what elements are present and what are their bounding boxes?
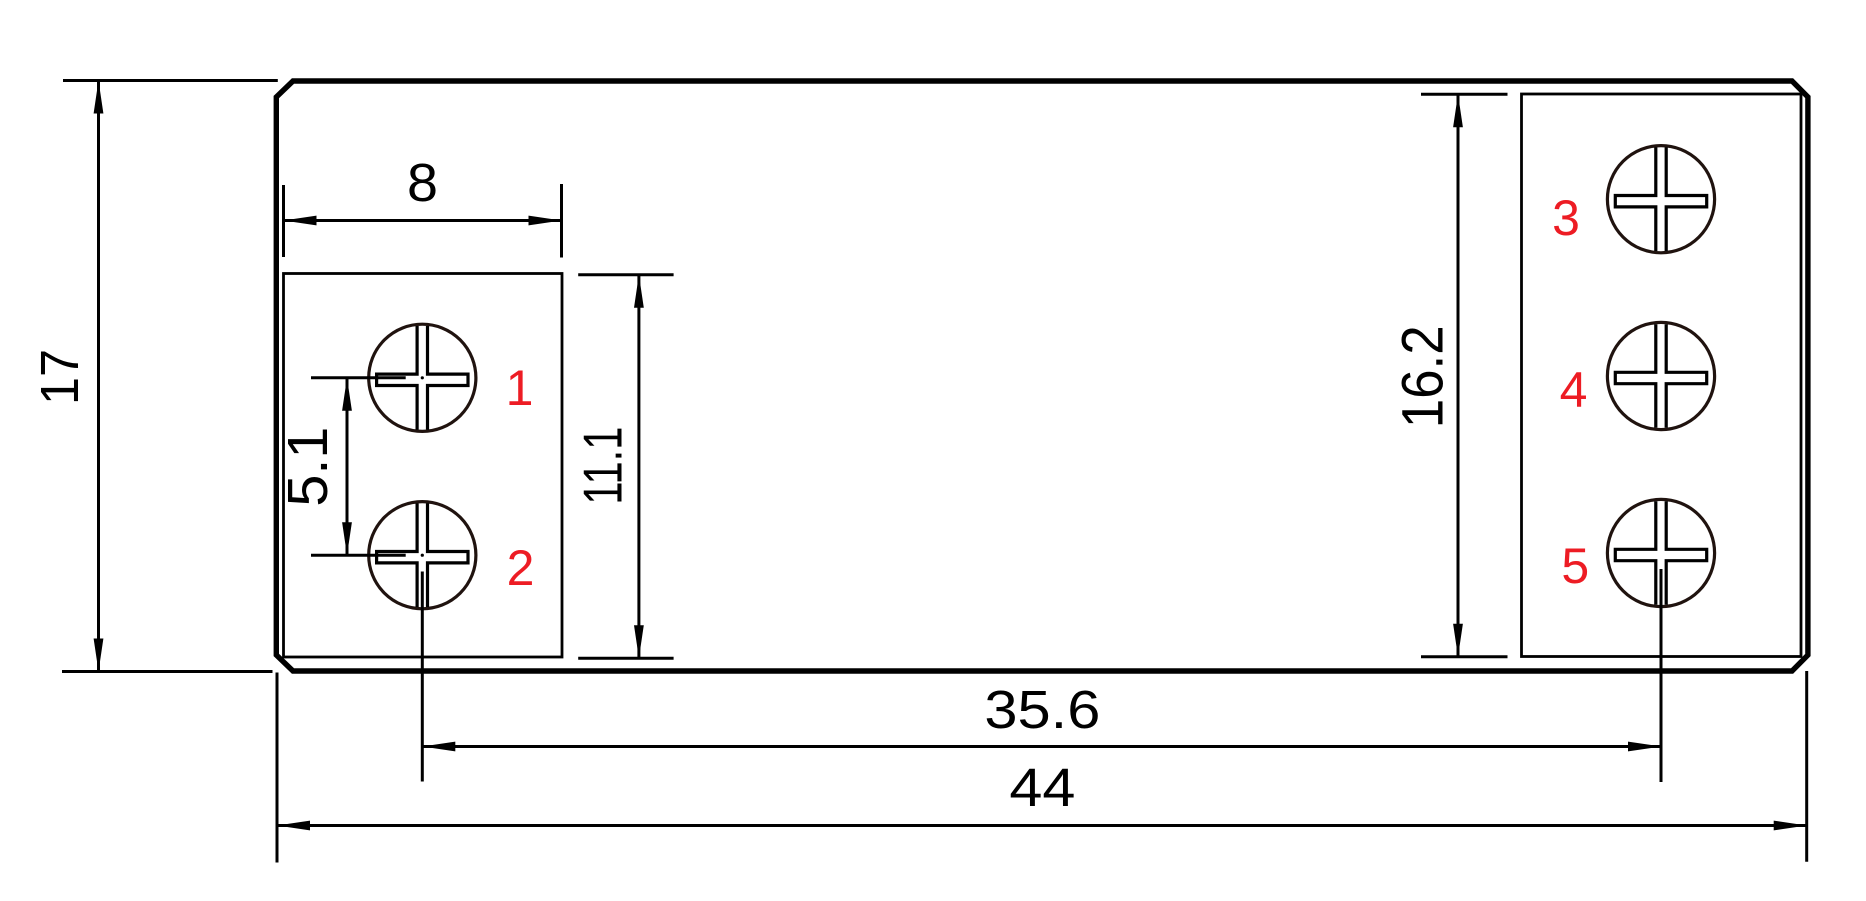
svg-text:3: 3 [1552, 190, 1580, 246]
svg-text:8: 8 [407, 154, 438, 213]
svg-text:1: 1 [506, 360, 534, 416]
svg-text:4: 4 [1560, 362, 1588, 418]
svg-text:17: 17 [31, 349, 90, 405]
svg-text:44: 44 [1009, 759, 1075, 818]
svg-text:5.1: 5.1 [276, 427, 340, 507]
svg-text:16.2: 16.2 [1391, 325, 1456, 428]
svg-text:35.6: 35.6 [984, 681, 1100, 740]
svg-text:2: 2 [507, 540, 535, 596]
svg-text:11.1: 11.1 [573, 427, 634, 505]
svg-text:5: 5 [1561, 538, 1589, 594]
